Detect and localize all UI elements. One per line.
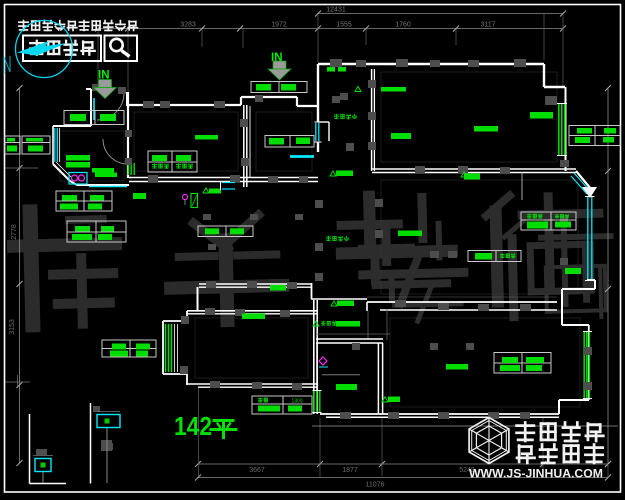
svg-text:1877: 1877 bbox=[342, 467, 358, 474]
svg-text:3283: 3283 bbox=[180, 22, 196, 29]
svg-text:1760: 1760 bbox=[395, 22, 411, 29]
svg-text:3153: 3153 bbox=[9, 319, 16, 335]
svg-text:1555: 1555 bbox=[336, 22, 352, 29]
svg-text:1300: 1300 bbox=[291, 399, 302, 405]
svg-text:12431: 12431 bbox=[326, 7, 346, 14]
svg-text:3117: 3117 bbox=[480, 22, 495, 29]
svg-text:1972: 1972 bbox=[271, 22, 287, 29]
svg-text:2778: 2778 bbox=[11, 224, 18, 240]
svg-text:142: 142 bbox=[174, 411, 212, 441]
svg-text:WWW.JS-JINHUA.COM: WWW.JS-JINHUA.COM bbox=[469, 467, 603, 481]
svg-text:11076: 11076 bbox=[366, 482, 385, 489]
svg-text:3667: 3667 bbox=[249, 467, 265, 474]
